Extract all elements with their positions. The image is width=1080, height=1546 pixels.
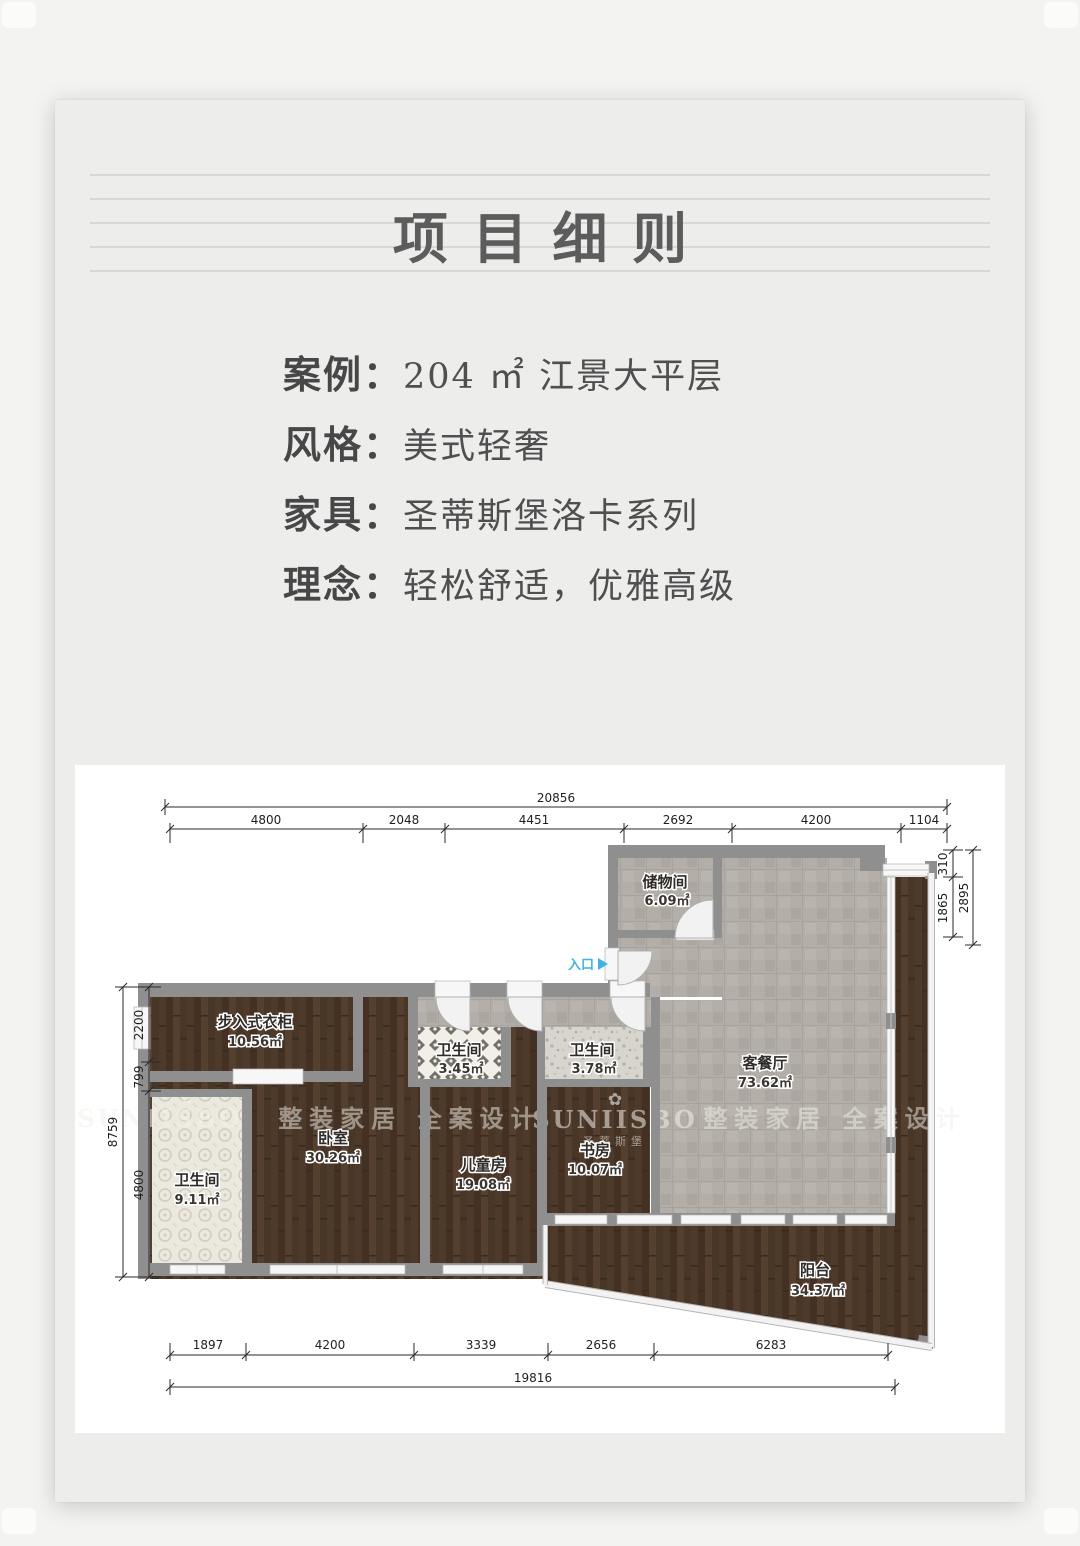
dim-left-total: 8759 [106, 1117, 120, 1148]
detail-value: 轻松舒适，优雅高级 [403, 552, 736, 622]
detail-value: 美式轻奢 [403, 412, 551, 482]
window-living-4 [793, 1215, 837, 1224]
dim-bottom-2: 3339 [466, 1338, 497, 1352]
floorplan-card: SUNIISBO ✿ 整装家居 全案设计 ✿ SUNIISBO 圣蒂斯堡 整装家… [75, 765, 1005, 1433]
dim-left-0: 2200 [132, 1010, 146, 1041]
room-label-study: 书房 [580, 1141, 610, 1159]
entrance-label: 入口 [568, 958, 594, 973]
room-area-closet: 10.56㎡ [228, 1034, 282, 1050]
entrance-marker: 入口 [568, 958, 608, 973]
window-living-2 [681, 1215, 731, 1224]
room-area-bedroom: 30.26㎡ [306, 1150, 360, 1166]
dim-top-1: 2048 [389, 813, 420, 827]
detail-row-concept: 理念： 轻松舒适，优雅高级 [283, 550, 736, 620]
room-label-kids: 儿童房 [459, 1156, 505, 1174]
window-study [555, 1215, 607, 1224]
window-living-5 [845, 1215, 887, 1224]
corner-decor-top-left [2, 2, 36, 28]
dim-right-total: 2895 [957, 883, 971, 914]
dim-top-total: 20856 [537, 791, 575, 805]
door-gap-bath-a [435, 981, 470, 999]
room-label-living: 客餐厅 [741, 1054, 787, 1072]
dim-bottom-4: 6283 [756, 1338, 787, 1352]
room-label-closet: 步入式衣柜 [217, 1013, 292, 1031]
dim-right-0: 310 [936, 853, 950, 876]
room-area-bath-master: 9.11㎡ [174, 1192, 219, 1208]
dim-top-4: 4200 [801, 813, 832, 827]
room-label-bath-master: 卫生间 [174, 1171, 219, 1189]
room-area-study: 10.07㎡ [568, 1162, 622, 1178]
dim-top-5: 1104 [909, 813, 940, 827]
dim-top-3: 2692 [663, 813, 694, 827]
room-label-storage: 储物间 [642, 873, 687, 891]
dim-right-1: 1865 [936, 893, 950, 924]
door-gap-closet [233, 1069, 303, 1084]
dim-top-2: 4451 [519, 813, 550, 827]
door-gap-kids [507, 981, 542, 999]
corner-decor-bottom-left [2, 1508, 36, 1534]
dim-bottom-1: 4200 [315, 1338, 346, 1352]
detail-value: 204 ㎡ 江景大平层 [403, 342, 724, 412]
dim-left-1: 799 [132, 1066, 146, 1089]
window-living-3 [741, 1215, 785, 1224]
room-area-storage: 6.09㎡ [644, 893, 689, 909]
dim-bottom-0: 1897 [193, 1338, 224, 1352]
detail-label: 家具： [283, 480, 403, 550]
title-rule-1 [90, 174, 990, 176]
room-label-bath-b: 卫生间 [569, 1041, 614, 1059]
dim-bottom-total: 19816 [514, 1371, 552, 1385]
detail-value: 圣蒂斯堡洛卡系列 [403, 482, 699, 552]
room-area-bath-b: 3.78㎡ [571, 1061, 616, 1077]
watermark-slogan-right: 整装家居 全案设计 [703, 1105, 966, 1133]
room-area-living: 73.62㎡ [738, 1075, 792, 1091]
floor-tile-living [722, 858, 887, 1215]
detail-label: 风格： [283, 410, 403, 480]
page-title: 项目细则 [55, 194, 1025, 274]
dim-top-0: 4800 [251, 813, 282, 827]
detail-row-case: 案例： 204 ㎡ 江景大平层 [283, 340, 736, 410]
window-living-1 [617, 1215, 672, 1224]
room-area-kids: 19.08㎡ [456, 1177, 510, 1193]
content-card: 项目细则 案例： 204 ㎡ 江景大平层 风格： 美式轻奢 家具： 圣蒂斯堡洛卡… [55, 100, 1025, 1502]
detail-label: 理念： [283, 550, 403, 620]
room-area-balcony: 34.37㎡ [791, 1283, 845, 1299]
watermark-brand-center: SUNIISBO [532, 1105, 698, 1134]
floorplan-svg: SUNIISBO ✿ 整装家居 全案设计 ✿ SUNIISBO 圣蒂斯堡 整装家… [75, 765, 1005, 1433]
dim-bottom-3: 2656 [586, 1338, 617, 1352]
corner-decor-top-right [1044, 2, 1078, 28]
project-details: 案例： 204 ㎡ 江景大平层 风格： 美式轻奢 家具： 圣蒂斯堡洛卡系列 理念… [283, 340, 736, 620]
watermark-brand-left: SUNIISBO [77, 1104, 243, 1133]
room-label-balcony: 阳台 [800, 1261, 830, 1279]
room-area-bath-a: 3.45㎡ [438, 1061, 483, 1077]
detail-row-furniture: 家具： 圣蒂斯堡洛卡系列 [283, 480, 736, 550]
corner-decor-bottom-right [1044, 1508, 1078, 1534]
dim-left-2: 4800 [132, 1170, 146, 1201]
detail-label: 案例： [283, 340, 403, 410]
room-label-bedroom: 卧室 [318, 1129, 348, 1147]
detail-row-style: 风格： 美式轻奢 [283, 410, 736, 480]
room-label-bath-a: 卫生间 [436, 1041, 481, 1059]
